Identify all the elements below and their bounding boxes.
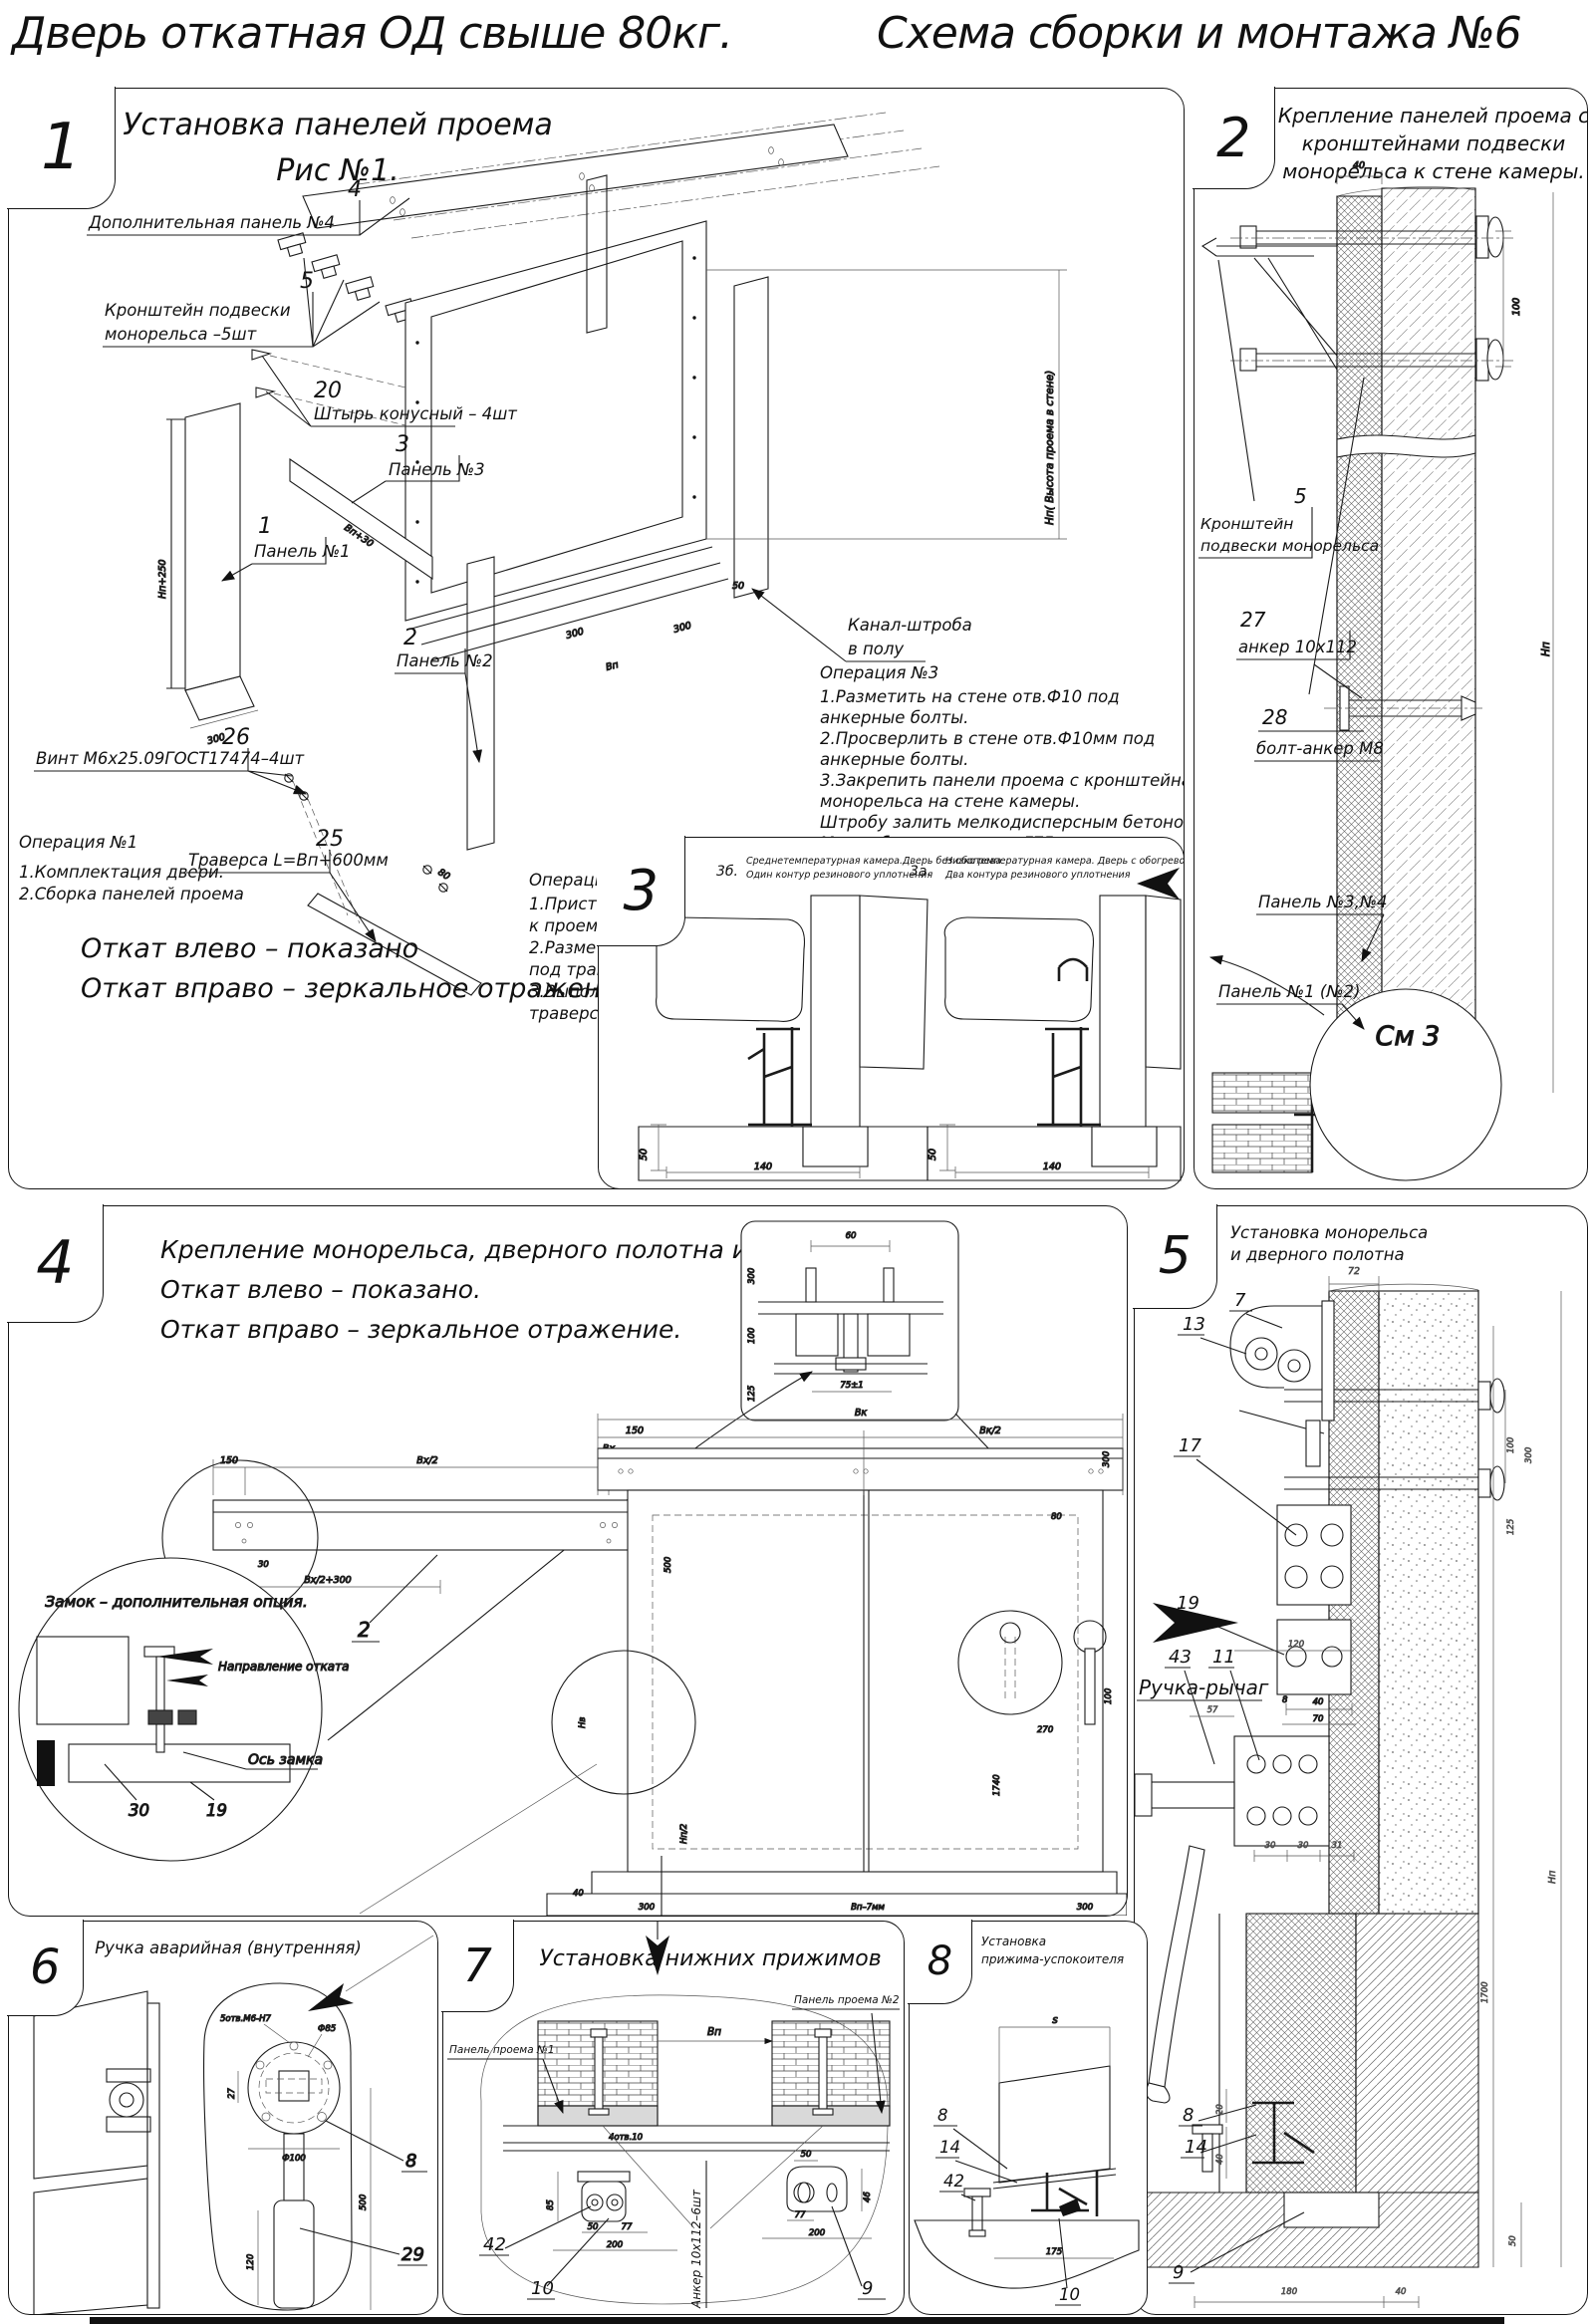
floor-anchor [964, 2189, 990, 2236]
section-number-tab: 1 [7, 87, 116, 209]
section-number: 1 [41, 111, 82, 184]
subfigure-caption: Один контур резинового уплотнения [746, 870, 932, 881]
callout-label: Дополнительная панель №4 [88, 213, 335, 232]
callout-number: 13 [1183, 1314, 1205, 1335]
callout-number: 9 [1173, 2262, 1184, 2283]
dim-label: 200 [809, 2228, 825, 2238]
dim-label: Вх/2 [416, 1455, 437, 1466]
dim-label: 50 [801, 2150, 812, 2160]
section-number: 3 [623, 859, 659, 923]
dim-label: 300 [565, 627, 585, 642]
dim-label: 300 [672, 621, 692, 636]
dim-label: 57 [1207, 1705, 1218, 1715]
dim-label: 8 [1282, 1695, 1288, 1705]
dim-label: 180 [1281, 2287, 1297, 2297]
callout-number: 10 [531, 2278, 554, 2299]
dim-label: 60 [846, 1231, 857, 1241]
callout-number: 9 [862, 2278, 873, 2299]
section-number-tab: 2 [1193, 87, 1275, 189]
op1-line: 2.Сборка панелей проема [19, 885, 244, 904]
dim-label: Вп [707, 2026, 721, 2038]
dim-label: 20 [1215, 2104, 1225, 2115]
callout-label: Кронштейн [1200, 515, 1293, 533]
dim-label: Нп+250 [157, 560, 168, 599]
callout-number: 1 [258, 514, 272, 539]
section-number: 4 [36, 1228, 74, 1298]
callout-label: монорельса –5шт [105, 325, 257, 344]
reference-arrow [1137, 868, 1180, 900]
dim-label: 40 [1313, 1697, 1324, 1707]
dim-label: 1740 [992, 1774, 1002, 1796]
dim-label: 50 [732, 581, 744, 592]
sheet-title-right: Схема сборки и монтажа №6 [877, 8, 1521, 59]
callout-number: 8 [405, 2151, 416, 2172]
note-label: 5отв.М6-Н7 [220, 2014, 271, 2024]
axis-label: Ось замка [248, 1752, 323, 1768]
dim-label: 140 [754, 1162, 772, 1172]
dim-label: 50 [928, 1149, 938, 1161]
dim-label: s [1052, 2014, 1058, 2026]
low-temp-detail: 50 140 [928, 896, 1181, 1180]
callout-label: Панель №2 [397, 651, 493, 670]
dim-label: 77 [622, 2222, 633, 2232]
section-6-emergency-handle: Ручка аварийная (внутренняя) 5отв.М6-Н7 [8, 1921, 438, 2315]
callout-number: 2 [403, 626, 417, 650]
dim-label: 100 [1104, 1688, 1114, 1704]
section-number-tab: 7 [441, 1920, 514, 2012]
handle-label: Ручка-рычаг [1139, 1676, 1269, 1699]
section-number-tab: 5 [1133, 1204, 1217, 1309]
callout-number: 29 [401, 2244, 424, 2265]
dim-label: 100 [1511, 298, 1522, 316]
handle-front-view: 5отв.М6-Н7 Ф85 27 Ф100 500 120 8 29 [204, 1936, 433, 2310]
section-title: Крепление панелей проема с [1278, 104, 1587, 128]
dim-label: 300 [639, 1903, 655, 1913]
panel-label: Панель проема №2 [794, 1994, 900, 2006]
dim-label: 140 [1043, 1162, 1061, 1172]
callout-number: 8 [1183, 2105, 1194, 2126]
section-number: 5 [1159, 1226, 1192, 1286]
callout-number: 10 [1059, 2285, 1080, 2304]
op3-title: Операция №3 [820, 663, 938, 682]
dim-label: Ф100 [282, 2154, 306, 2164]
dim-label: 50 [1508, 2235, 1518, 2246]
op3-line: 2.Просверлить в стене отв.Ф10мм под [820, 729, 1155, 748]
section-number-tab: 8 [908, 1920, 972, 2004]
callout-number: 8 [937, 2106, 948, 2125]
op3-line: анкерные болты. [820, 750, 968, 769]
section-5-monorail-leaf-install: Установка монорельса и дверного полотна [1134, 1205, 1588, 2315]
dim-label: 270 [1037, 1725, 1053, 1735]
section-3-threshold-details: 3б. Среднетемпературная камера.Дверь без… [598, 837, 1185, 1189]
dim-label: 40 [573, 1889, 584, 1899]
op3-line: 3.Закрепить панели проема с кронштейнами… [820, 771, 1184, 790]
section-title: Установка нижних прижимов [539, 1946, 881, 1971]
section-2-panel-fixing: Крепление панелей проема с кронштейнами … [1194, 88, 1588, 1189]
dim-label: 300 [747, 1268, 757, 1284]
dim-label: Нп/2 [679, 1824, 689, 1844]
panel-label: Панель проема №1 [449, 2044, 555, 2056]
lock-option-inset: Замок – дополнительная опция. Направлени… [19, 1558, 349, 1861]
op3-line: монорельса на стене камеры. [820, 792, 1080, 811]
dim-label: 40 [1215, 2154, 1225, 2165]
anchor-label: Анкер 10х112–6шт [689, 2189, 703, 2309]
dim-label: 125 [747, 1386, 757, 1402]
dim-label: 40 [1396, 2287, 1407, 2297]
sheet-title-left: Дверь откатная ОД свыше 80кг. [12, 8, 732, 59]
callout-number: 42 [483, 2234, 506, 2255]
dim-label: 120 [1288, 1640, 1304, 1650]
callout-label: Панель №1 [254, 542, 351, 561]
callout-number: 7 [1234, 1290, 1246, 1311]
detail-reference: См 3 [1376, 1021, 1441, 1052]
callout-number: 27 [1240, 608, 1266, 632]
dim-label: 300 [1524, 1447, 1534, 1463]
dim-label: 300 [1077, 1903, 1093, 1913]
wall-section-view: См 3 40 100 Нп [1202, 160, 1553, 1180]
dim-label: 50 [588, 2222, 599, 2232]
callout-label: Панель №1 (№2) [1218, 982, 1360, 1001]
drawing-sheet: Дверь откатная ОД свыше 80кг. Схема сбор… [0, 0, 1594, 2324]
callout-number: 26 [222, 725, 250, 750]
callout-label: подвески монорельса [1200, 537, 1379, 555]
callout-number: 14 [939, 2138, 960, 2157]
dim-label: 100 [747, 1328, 757, 1344]
dim-label: 77 [795, 2210, 806, 2220]
dim-label: 500 [664, 1557, 673, 1573]
op1-line: 1.Комплектация двери. [19, 863, 224, 882]
sheet-edge-strip [90, 2317, 1504, 2324]
dim-label: 500 [359, 2195, 369, 2210]
dim-label: 85 [546, 2199, 556, 2210]
section-title: прижима-успокоителя [981, 1952, 1124, 1966]
dim-label: 125 [1506, 1519, 1516, 1535]
op3-line: анкерные болты. [820, 708, 968, 727]
dim-label: 30 [1265, 1841, 1276, 1851]
callout-number: 14 [1185, 2137, 1207, 2158]
callout-number: 3 [396, 432, 409, 457]
dim-label: Нв [578, 1717, 588, 1728]
section-number-tab: 4 [7, 1204, 104, 1323]
dim-label: Вк/2 [979, 1425, 1001, 1436]
dim-label: 46 [863, 2192, 873, 2202]
callout-label: болт-анкер М8 [1256, 739, 1384, 758]
dim-label: Вх/2+300 [304, 1575, 351, 1586]
trolley-assembly [1230, 1301, 1334, 1466]
section-4-drawing: Крепление монорельса, дверного полотна и… [9, 1206, 1127, 1916]
callout-label: Винт М6х25.09ГОСТ17474–4шт [36, 749, 305, 768]
section-number: 8 [928, 1938, 952, 1984]
dim-label: 31 [1332, 1841, 1343, 1851]
section-number: 7 [463, 1938, 492, 1992]
section-title: Установка [981, 1935, 1046, 1948]
dim-label: 27 [227, 2088, 237, 2099]
section-number-tab: 3 [597, 836, 685, 946]
callout-number: 4 [348, 177, 362, 202]
mid-temp-detail: 50 140 [639, 896, 928, 1180]
callout-label: анкер 10х112 [1238, 638, 1357, 656]
subfigure-caption: Низкотемпературная камера. Дверь с обогр… [945, 856, 1184, 867]
door-elevation: 150 Вк Вк/2 300 80 500 270 1740 100 Нв Н… [360, 1408, 1127, 1916]
callout-number: 19 [206, 1801, 227, 1820]
callout-number: 2 [358, 1618, 371, 1642]
dim-label: 80 [1051, 1512, 1062, 1522]
dim-label: 70 [1313, 1714, 1324, 1724]
callout-label: Панель №3 [389, 460, 485, 479]
section-2-drawing: Крепление панелей проема с кронштейнами … [1195, 89, 1587, 1188]
section-8-damper-clamp: Установка прижима-успокоителя s 175 8 14… [909, 1921, 1148, 2315]
callouts: 8 14 42 10 [933, 2106, 1081, 2305]
callout-number: 25 [316, 827, 344, 852]
callout-number: 42 [943, 2172, 964, 2191]
section-7-bottom-clamps: Установка нижних прижимов Вп 4отв.10 [442, 1921, 905, 2315]
dim-label: 150 [626, 1425, 644, 1436]
section-subtitle: Рис №1. [276, 153, 398, 188]
dim-label: Вк [855, 1408, 868, 1419]
section-title: кронштейнами подвески [1302, 131, 1565, 155]
callout-number: 43 [1169, 1647, 1192, 1668]
callout-label: Канал-штроба [848, 616, 972, 635]
section-title: Установка панелей проема [123, 108, 553, 142]
dim-label: 40 [1353, 160, 1365, 171]
inset-title: Замок – дополнительная опция. [45, 1593, 308, 1611]
dim-label: Нп [1540, 642, 1552, 656]
dim-label: 1700 [1480, 1981, 1490, 2003]
section-title: Откат вправо – зеркальное отражение. [160, 1315, 681, 1344]
dim-label: Вп–7мм [851, 1903, 885, 1913]
callout-label: Кронштейн подвески [105, 301, 291, 320]
callout-number: 20 [314, 379, 342, 403]
callout-number: 28 [1262, 705, 1287, 729]
op1-title: Операция №1 [19, 833, 137, 852]
callout-number: 11 [1212, 1647, 1235, 1668]
section-title: Ручка аварийная (внутренняя) [95, 1938, 362, 1957]
subfigure-caption: Два контура резинового уплотнения [944, 870, 1131, 881]
op3-line: Штробу залить мелкодисперсным бетоном [820, 813, 1184, 832]
section-number: 6 [30, 1939, 61, 1995]
handle-side-view [34, 1991, 159, 2314]
dim-label: 72 [1348, 1266, 1360, 1277]
dim-label: 80 [435, 867, 451, 883]
section-title: Откат влево – показано. [160, 1275, 481, 1304]
dim-label: Вп [605, 659, 620, 673]
callout-number: 30 [129, 1801, 149, 1820]
dim-label: 300 [1102, 1451, 1112, 1467]
dim-label: 30 [258, 1560, 269, 1570]
dim-label: Нп [1547, 1871, 1558, 1884]
slide-note: Откат вправо – зеркальное отражение. [81, 973, 644, 1004]
dim-label: 30 [1298, 1841, 1309, 1851]
section-number-tab: 6 [7, 1920, 84, 2016]
section-title: монорельса к стене камеры. [1282, 159, 1585, 183]
callout-label: в полу [848, 640, 904, 658]
slide-note: Откат влево – показано [81, 933, 418, 964]
dim-label: 175 [1046, 2247, 1062, 2257]
section-number: 2 [1216, 107, 1250, 169]
direction-label: Направление отката [218, 1660, 349, 1674]
callout-label: Панель №3,№4 [1258, 893, 1388, 911]
subfigure-id: 3б. [716, 864, 738, 880]
dim-label: Ф85 [318, 2024, 336, 2034]
op3-line: 1.Разметить на стене отв.Ф10 под [820, 687, 1120, 706]
dim-label: 200 [607, 2240, 623, 2250]
dim-label: 75±1 [840, 1381, 863, 1391]
section-4-monorail-leaf-hardware: Крепление монорельса, дверного полотна и… [8, 1205, 1128, 1917]
callout-label: Штырь конусный – 4шт [314, 404, 517, 423]
dim-label: 50 [639, 1149, 650, 1161]
subfigure-id: 3а. [910, 864, 931, 880]
section-3-drawing: 3б. Среднетемпературная камера.Дверь без… [599, 838, 1184, 1188]
dim-label: Нп( Высота проема в стене) [1044, 371, 1056, 525]
callout-number: 17 [1179, 1435, 1201, 1456]
dim-label: 120 [246, 2254, 256, 2270]
dim-label: 100 [1506, 1437, 1516, 1453]
section-5-drawing: Установка монорельса и дверного полотна [1135, 1206, 1587, 2314]
section-title: Установка монорельса [1230, 1223, 1428, 1242]
callout-number: 5 [1294, 484, 1307, 508]
section-title: и дверного полотна [1230, 1245, 1405, 1264]
